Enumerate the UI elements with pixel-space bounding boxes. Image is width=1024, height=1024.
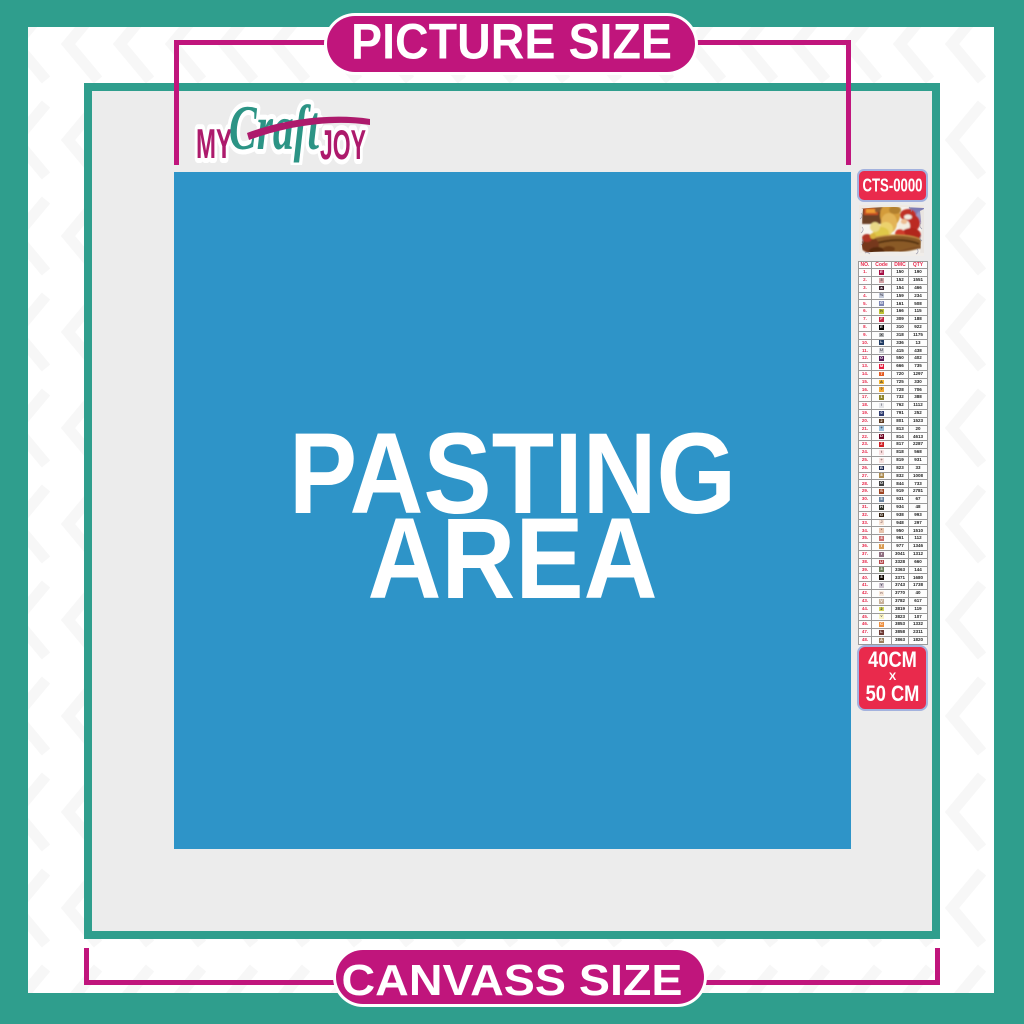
svg-text:PICTURE SIZE: PICTURE SIZE [351, 16, 672, 70]
svg-text:CANVASS SIZE: CANVASS SIZE [342, 956, 683, 1004]
svg-text:CTS-0000: CTS-0000 [863, 175, 923, 196]
svg-text:JOY: JOY [320, 121, 366, 165]
svg-text:MY: MY [196, 120, 232, 165]
